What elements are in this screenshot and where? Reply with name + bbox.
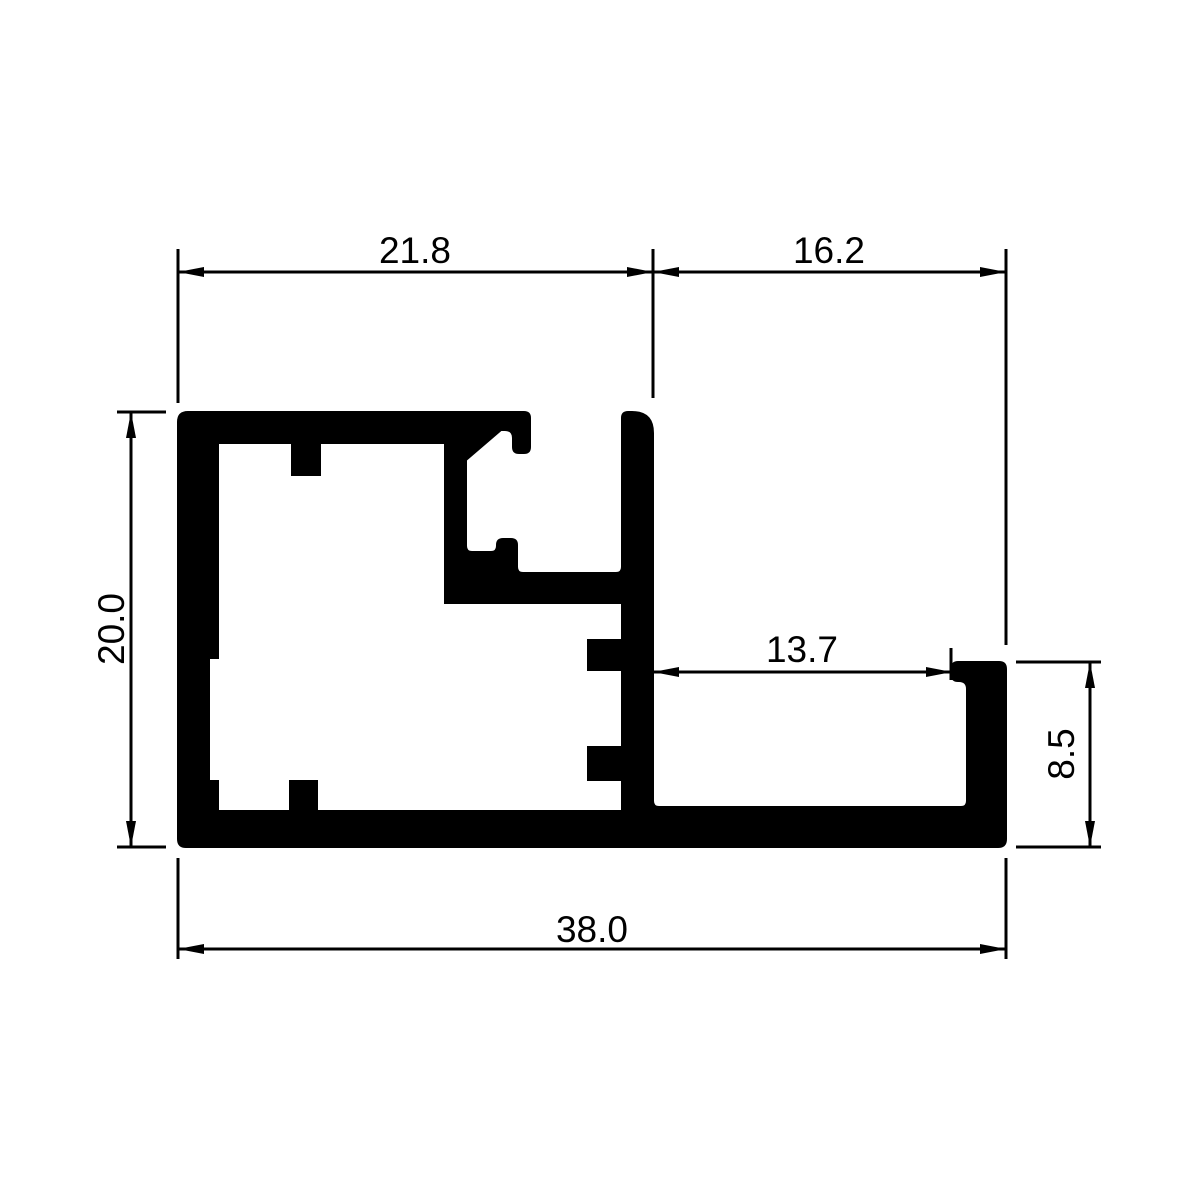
technical-drawing: 21.8 16.2 20.0 13.7 8.5 38.0 bbox=[0, 0, 1200, 1200]
dim-label-right-height: 8.5 bbox=[1041, 728, 1082, 779]
dimension-arrowheads bbox=[126, 267, 1095, 954]
arrow-left-icon bbox=[178, 944, 204, 954]
dim-label-sill-opening: 13.7 bbox=[766, 629, 838, 670]
arrow-left-icon bbox=[178, 267, 204, 277]
dim-label-top-right: 16.2 bbox=[793, 230, 865, 271]
arrow-right-icon bbox=[980, 267, 1006, 277]
drawing-canvas: 21.8 16.2 20.0 13.7 8.5 38.0 bbox=[0, 0, 1200, 1200]
arrow-left-icon bbox=[653, 267, 679, 277]
arrow-down-icon bbox=[126, 821, 136, 847]
profile-cross-section-shape bbox=[178, 412, 1006, 847]
arrow-up-icon bbox=[1085, 662, 1095, 688]
dim-label-left-height: 20.0 bbox=[91, 593, 132, 665]
arrow-down-icon bbox=[1085, 821, 1095, 847]
dim-label-top-left: 21.8 bbox=[379, 230, 451, 271]
arrow-right-icon bbox=[926, 667, 952, 677]
arrow-right-icon bbox=[980, 944, 1006, 954]
arrow-up-icon bbox=[126, 412, 136, 438]
arrow-left-icon bbox=[653, 667, 679, 677]
arrow-right-icon bbox=[627, 267, 653, 277]
dim-label-total-width: 38.0 bbox=[556, 909, 628, 950]
